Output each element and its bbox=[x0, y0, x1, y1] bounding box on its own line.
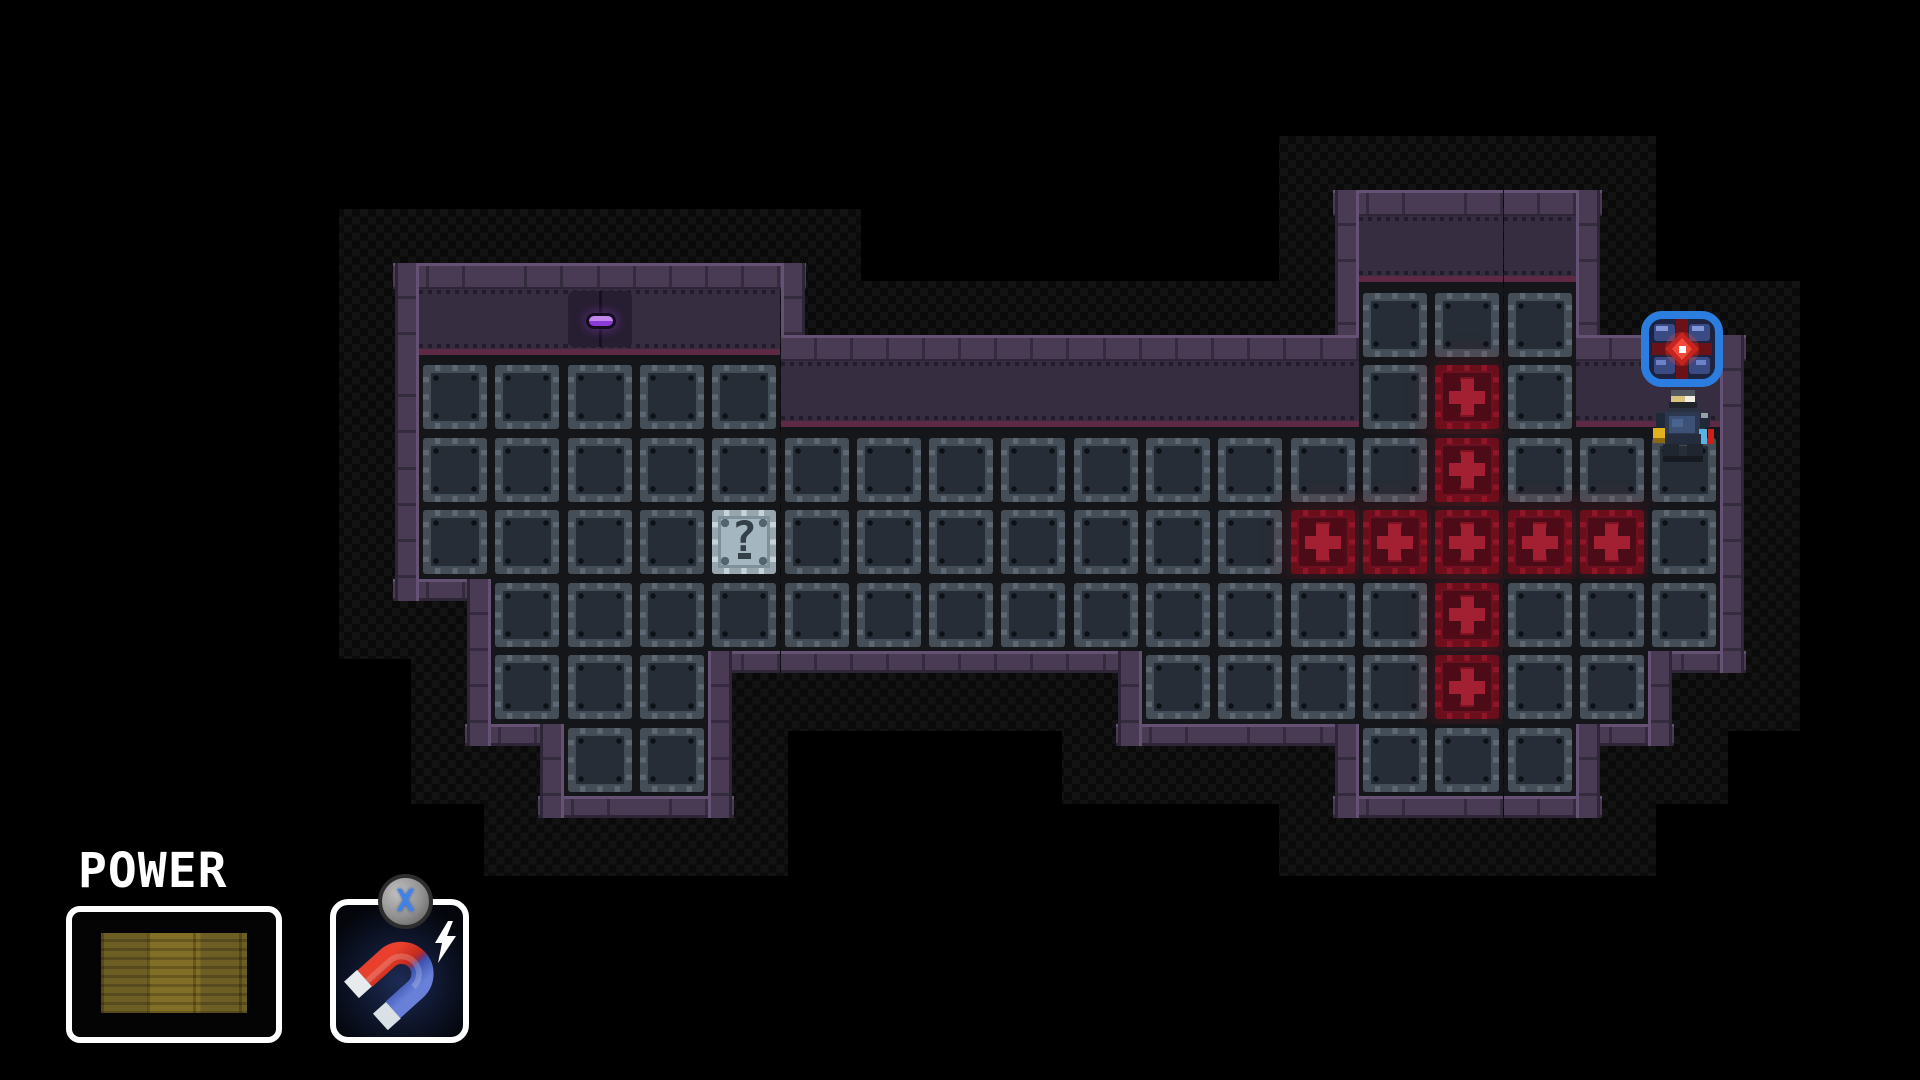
wall-north bbox=[1214, 335, 1286, 361]
floor-tile bbox=[1218, 438, 1282, 502]
wall-west bbox=[395, 506, 419, 601]
hotkey-label: X bbox=[396, 884, 414, 919]
hazard-tile bbox=[1363, 510, 1427, 574]
wall-band bbox=[1142, 361, 1214, 434]
wall-north bbox=[853, 335, 925, 361]
map-cell bbox=[636, 651, 708, 724]
wall-band bbox=[1359, 216, 1431, 289]
map-cell bbox=[1287, 434, 1359, 507]
floor-tile bbox=[1218, 655, 1282, 719]
map-cell bbox=[564, 506, 636, 579]
floor-tile bbox=[495, 583, 559, 647]
wall-band-trim bbox=[853, 421, 925, 427]
floor-tile bbox=[1001, 510, 1065, 574]
map-cell bbox=[636, 434, 708, 507]
wall-south bbox=[1214, 724, 1286, 746]
map-cell bbox=[636, 579, 708, 652]
map-cell bbox=[419, 361, 491, 434]
wall-south bbox=[1431, 796, 1503, 818]
player-robot bbox=[1651, 388, 1715, 464]
wall-band-trim bbox=[708, 349, 780, 355]
floor-tile bbox=[568, 365, 632, 429]
wall-band-trim bbox=[419, 349, 491, 355]
wall-band-face bbox=[1287, 361, 1359, 421]
map-cell bbox=[491, 361, 563, 434]
floor-tile bbox=[495, 655, 559, 719]
map-cell bbox=[1504, 506, 1576, 579]
map-cell bbox=[1359, 361, 1431, 434]
wall-band bbox=[925, 361, 997, 434]
map-cell bbox=[1070, 579, 1142, 652]
map-cell bbox=[1359, 579, 1431, 652]
wall-band-trim bbox=[636, 349, 708, 355]
floor-tile bbox=[929, 583, 993, 647]
wall-west bbox=[1335, 190, 1359, 289]
map-cell bbox=[1142, 579, 1214, 652]
wall-band bbox=[1214, 361, 1286, 434]
floor-tile bbox=[929, 510, 993, 574]
floor-tile bbox=[423, 438, 487, 502]
floor-tile bbox=[1074, 510, 1138, 574]
item-slot-magnet[interactable]: X bbox=[330, 899, 469, 1043]
map-cell bbox=[419, 434, 491, 507]
wall-band-face bbox=[1431, 216, 1503, 276]
map-cell bbox=[1431, 724, 1503, 797]
map-cell bbox=[1070, 434, 1142, 507]
map-cell bbox=[1287, 579, 1359, 652]
map-cell bbox=[1214, 434, 1286, 507]
wall-east bbox=[1720, 506, 1744, 579]
hazard-tile bbox=[1435, 655, 1499, 719]
wall-band bbox=[1287, 361, 1359, 434]
map-cell bbox=[997, 434, 1069, 507]
floor-tile bbox=[712, 583, 776, 647]
map-cell bbox=[1504, 434, 1576, 507]
wall-south bbox=[925, 651, 997, 673]
wall-north bbox=[491, 263, 563, 289]
lever-recess bbox=[568, 291, 632, 347]
wall-north bbox=[564, 263, 636, 289]
wall-band-trim bbox=[1287, 421, 1359, 427]
magnet-core-item bbox=[1640, 310, 1724, 388]
wall-west bbox=[1335, 724, 1359, 819]
map-cell bbox=[1504, 361, 1576, 434]
floor-tile bbox=[1508, 438, 1572, 502]
floor-tile bbox=[495, 438, 559, 502]
map-cell bbox=[1142, 506, 1214, 579]
wall-north bbox=[1576, 335, 1648, 361]
map-cell bbox=[491, 579, 563, 652]
wall-band-face bbox=[781, 361, 853, 421]
wall-band-face bbox=[491, 289, 563, 349]
map-cell bbox=[1504, 651, 1576, 724]
floor-tile bbox=[640, 728, 704, 792]
floor-tile bbox=[1074, 583, 1138, 647]
floor-tile bbox=[785, 583, 849, 647]
dungeon-map: ? bbox=[0, 0, 1920, 1080]
wall-band-trim bbox=[1431, 276, 1503, 282]
map-cell bbox=[1504, 724, 1576, 797]
floor-tile bbox=[1435, 293, 1499, 357]
wall-band bbox=[1504, 216, 1576, 289]
wall-east bbox=[708, 724, 732, 819]
floor-tile bbox=[1363, 655, 1427, 719]
map-cell bbox=[1576, 506, 1648, 579]
map-cell bbox=[636, 724, 708, 797]
floor-tile bbox=[495, 510, 559, 574]
map-cell bbox=[1504, 579, 1576, 652]
map-cell bbox=[853, 579, 925, 652]
wall-band-trim bbox=[491, 349, 563, 355]
map-cell bbox=[781, 434, 853, 507]
floor-tile bbox=[1508, 293, 1572, 357]
floor-tile bbox=[1146, 655, 1210, 719]
floor-tile bbox=[1435, 728, 1499, 792]
map-cell bbox=[708, 361, 780, 434]
floor-tile bbox=[1001, 583, 1065, 647]
floor-tile bbox=[1363, 728, 1427, 792]
floor-tile bbox=[495, 365, 559, 429]
floor-tile bbox=[1218, 510, 1282, 574]
wall-band-trim bbox=[1576, 421, 1648, 427]
wall-band bbox=[636, 289, 708, 362]
wall-band-trim bbox=[1214, 421, 1286, 427]
map-cell bbox=[1576, 434, 1648, 507]
floor-tile bbox=[1652, 510, 1716, 574]
map-cell bbox=[997, 579, 1069, 652]
hazard-tile bbox=[1435, 438, 1499, 502]
lever-switch[interactable] bbox=[586, 313, 616, 329]
wall-east bbox=[1648, 651, 1672, 746]
map-cell bbox=[1359, 289, 1431, 362]
wall-north bbox=[1431, 190, 1503, 216]
map-cell bbox=[1359, 506, 1431, 579]
map-cell bbox=[1431, 579, 1503, 652]
wall-band-face bbox=[708, 289, 780, 349]
map-cell bbox=[1214, 651, 1286, 724]
floor-tile bbox=[712, 365, 776, 429]
map-cell bbox=[1070, 506, 1142, 579]
floor-tile bbox=[640, 583, 704, 647]
map-cell bbox=[636, 361, 708, 434]
power-fill bbox=[101, 933, 247, 1013]
map-cell bbox=[781, 506, 853, 579]
map-cell bbox=[1648, 579, 1720, 652]
wall-west bbox=[1118, 651, 1142, 746]
wall-west bbox=[540, 724, 564, 819]
map-cell bbox=[491, 434, 563, 507]
wall-band-trim bbox=[1070, 421, 1142, 427]
floor-tile bbox=[423, 510, 487, 574]
map-cell bbox=[1287, 506, 1359, 579]
wall-west bbox=[467, 651, 491, 746]
map-cell bbox=[997, 506, 1069, 579]
map-cell bbox=[1142, 651, 1214, 724]
map-cell bbox=[1359, 651, 1431, 724]
floor-tile bbox=[929, 438, 993, 502]
wall-west bbox=[395, 361, 419, 434]
hazard-tile bbox=[1291, 510, 1355, 574]
map-cell bbox=[781, 579, 853, 652]
wall-band-face bbox=[997, 361, 1069, 421]
map-cell bbox=[925, 506, 997, 579]
wall-north bbox=[1287, 335, 1359, 361]
power-meter bbox=[66, 906, 282, 1043]
wall-north bbox=[1142, 335, 1214, 361]
wall-band bbox=[781, 361, 853, 434]
floor-tile bbox=[1146, 510, 1210, 574]
wall-band bbox=[997, 361, 1069, 434]
wall-band-face bbox=[1142, 361, 1214, 421]
floor-tile bbox=[1218, 583, 1282, 647]
floor-tile bbox=[1580, 583, 1644, 647]
floor-tile bbox=[1146, 438, 1210, 502]
wall-north bbox=[925, 335, 997, 361]
floor-tile bbox=[1363, 583, 1427, 647]
floor-tile bbox=[1291, 655, 1355, 719]
map-cell bbox=[1504, 289, 1576, 362]
wall-south bbox=[997, 651, 1069, 673]
floor-tile bbox=[1508, 728, 1572, 792]
hazard-tile bbox=[1508, 510, 1572, 574]
wall-band-face bbox=[1359, 216, 1431, 276]
floor-tile bbox=[640, 438, 704, 502]
map-cell bbox=[1214, 579, 1286, 652]
floor-tile bbox=[640, 655, 704, 719]
wall-band bbox=[1431, 216, 1503, 289]
map-cell bbox=[636, 506, 708, 579]
map-cell bbox=[708, 434, 780, 507]
game-screen[interactable]: ? POWER X bbox=[0, 0, 1920, 1080]
hazard-tile bbox=[1435, 510, 1499, 574]
floor-tile bbox=[1508, 655, 1572, 719]
wall-west bbox=[467, 579, 491, 652]
wall-band-trim bbox=[997, 421, 1069, 427]
map-cell bbox=[491, 651, 563, 724]
hazard-tile bbox=[1580, 510, 1644, 574]
power-label: POWER bbox=[78, 843, 228, 899]
floor-tile bbox=[640, 365, 704, 429]
floor-tile bbox=[640, 510, 704, 574]
floor-tile bbox=[423, 365, 487, 429]
map-cell bbox=[1142, 434, 1214, 507]
lightning-bolt-icon bbox=[431, 921, 459, 963]
floor-tile bbox=[857, 438, 921, 502]
wall-band-face bbox=[1214, 361, 1286, 421]
floor-tile bbox=[568, 510, 632, 574]
floor-tile bbox=[785, 510, 849, 574]
map-cell bbox=[564, 651, 636, 724]
map-cell bbox=[1431, 651, 1503, 724]
wall-north bbox=[1070, 335, 1142, 361]
wall-band-face bbox=[925, 361, 997, 421]
map-cell bbox=[1359, 434, 1431, 507]
wall-east bbox=[1720, 434, 1744, 507]
map-cell bbox=[1431, 289, 1503, 362]
wall-east bbox=[1576, 724, 1600, 819]
wall-band bbox=[1576, 361, 1648, 434]
wall-band-face bbox=[636, 289, 708, 349]
floor-tile bbox=[1580, 438, 1644, 502]
wall-band-trim bbox=[781, 421, 853, 427]
wall-band-face bbox=[1504, 216, 1576, 276]
floor-tile bbox=[1508, 365, 1572, 429]
map-cell bbox=[925, 579, 997, 652]
wall-band-face bbox=[1576, 361, 1648, 421]
floor-tile bbox=[857, 510, 921, 574]
floor-tile bbox=[1363, 365, 1427, 429]
floor-tile bbox=[785, 438, 849, 502]
map-cell bbox=[853, 506, 925, 579]
floor-tile bbox=[1580, 655, 1644, 719]
floor-tile bbox=[1146, 583, 1210, 647]
map-cell bbox=[708, 579, 780, 652]
question-block: ? bbox=[712, 510, 776, 574]
wall-band bbox=[708, 289, 780, 362]
wall-band-face bbox=[1070, 361, 1142, 421]
wall-band-with-lever bbox=[564, 289, 636, 362]
floor-tile bbox=[1508, 583, 1572, 647]
floor-tile bbox=[568, 583, 632, 647]
map-cell bbox=[853, 434, 925, 507]
wall-north bbox=[781, 335, 853, 361]
map-cell bbox=[925, 434, 997, 507]
question-dash bbox=[738, 553, 751, 559]
wall-band bbox=[491, 289, 563, 362]
floor-tile bbox=[712, 438, 776, 502]
floor-tile bbox=[568, 438, 632, 502]
map-cell bbox=[1431, 361, 1503, 434]
wall-band-trim bbox=[564, 349, 636, 355]
floor-tile bbox=[1363, 438, 1427, 502]
hazard-tile bbox=[1435, 365, 1499, 429]
hazard-tile bbox=[1435, 583, 1499, 647]
wall-south bbox=[853, 651, 925, 673]
floor-tile bbox=[1652, 583, 1716, 647]
wall-north bbox=[636, 263, 708, 289]
map-cell bbox=[1287, 651, 1359, 724]
floor-tile bbox=[1291, 583, 1355, 647]
map-cell bbox=[564, 579, 636, 652]
floor-tile bbox=[1074, 438, 1138, 502]
wall-band bbox=[419, 289, 491, 362]
map-cell: ? bbox=[708, 506, 780, 579]
floor-tile bbox=[568, 728, 632, 792]
wall-band-face bbox=[853, 361, 925, 421]
wall-west bbox=[395, 263, 419, 362]
map-cell bbox=[564, 724, 636, 797]
wall-west bbox=[395, 434, 419, 507]
wall-east bbox=[1720, 579, 1744, 674]
floor-tile bbox=[1291, 438, 1355, 502]
floor-tile bbox=[568, 655, 632, 719]
wall-band bbox=[853, 361, 925, 434]
map-cell bbox=[564, 361, 636, 434]
floor-tile bbox=[1001, 438, 1065, 502]
wall-band-trim bbox=[1359, 276, 1431, 282]
wall-north bbox=[997, 335, 1069, 361]
map-cell bbox=[419, 506, 491, 579]
wall-east bbox=[708, 651, 732, 724]
map-cell bbox=[1431, 506, 1503, 579]
wall-band bbox=[1070, 361, 1142, 434]
wall-south bbox=[781, 651, 853, 673]
map-cell bbox=[491, 506, 563, 579]
map-cell bbox=[1431, 434, 1503, 507]
floor-tile bbox=[1363, 293, 1427, 357]
wall-band-trim bbox=[1142, 421, 1214, 427]
map-cell bbox=[1576, 579, 1648, 652]
wall-band-trim bbox=[925, 421, 997, 427]
map-cell bbox=[1576, 651, 1648, 724]
wall-east bbox=[1576, 190, 1600, 289]
wall-band-face bbox=[419, 289, 491, 349]
map-cell bbox=[1359, 724, 1431, 797]
floor-tile bbox=[857, 583, 921, 647]
wall-band-trim bbox=[1504, 276, 1576, 282]
map-cell bbox=[564, 434, 636, 507]
map-cell bbox=[1648, 506, 1720, 579]
map-cell bbox=[1214, 506, 1286, 579]
